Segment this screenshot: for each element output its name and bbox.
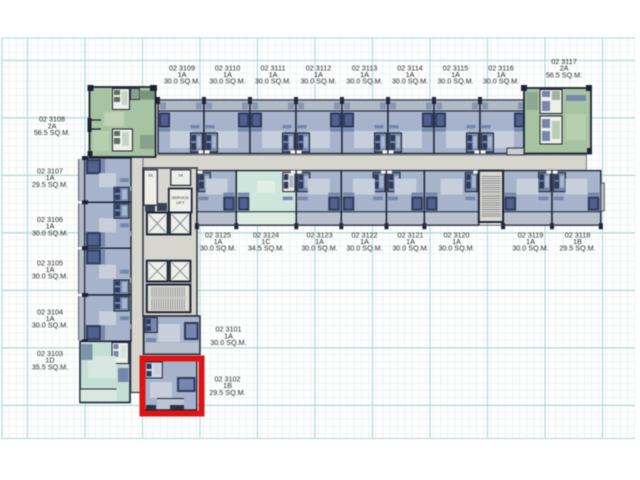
svg-text:34.5 SQ.M.: 34.5 SQ.M. xyxy=(248,244,284,253)
svg-text:04: 04 xyxy=(178,173,183,178)
svg-text:30.0 SQ.M.: 30.0 SQ.M. xyxy=(210,338,246,347)
svg-text:30.0 SQ.M.: 30.0 SQ.M. xyxy=(392,244,428,253)
svg-text:29.5 SQ.M.: 29.5 SQ.M. xyxy=(32,180,68,189)
svg-text:30.0 SQ.M.: 30.0 SQ.M. xyxy=(437,77,473,86)
svg-text:29.5 SQ.M.: 29.5 SQ.M. xyxy=(209,388,245,397)
svg-text:30.0 SQ.M.: 30.0 SQ.M. xyxy=(32,272,68,281)
svg-text:56.5 SQ.M.: 56.5 SQ.M. xyxy=(34,128,70,137)
svg-text:30.0 SQ.M.: 30.0 SQ.M. xyxy=(301,244,337,253)
svg-text:03: 03 xyxy=(148,173,153,178)
svg-text:30.0 SQ.M.: 30.0 SQ.M. xyxy=(346,77,382,86)
svg-text:35.5 SQ.M.: 35.5 SQ.M. xyxy=(32,362,68,371)
svg-text:30.0 SQ.M.: 30.0 SQ.M. xyxy=(346,244,382,253)
svg-text:30.0 SQ.M.: 30.0 SQ.M. xyxy=(438,244,474,253)
svg-text:30.0 SQ.M.: 30.0 SQ.M. xyxy=(32,228,68,237)
svg-text:30.0 SQ.M.: 30.0 SQ.M. xyxy=(392,77,428,86)
svg-text:56.5 SQ.M.: 56.5 SQ.M. xyxy=(546,70,582,79)
svg-text:29.5 SQ.M.: 29.5 SQ.M. xyxy=(559,244,595,253)
svg-text:30.0 SQ.M.: 30.0 SQ.M. xyxy=(164,77,200,86)
svg-text:30.0 SQ.M.: 30.0 SQ.M. xyxy=(483,77,519,86)
svg-text:30.0 SQ.M.: 30.0 SQ.M. xyxy=(512,244,548,253)
svg-text:30.0 SQ.M.: 30.0 SQ.M. xyxy=(255,77,291,86)
svg-text:LIFT: LIFT xyxy=(176,200,185,205)
svg-text:30.0 SQ.M.: 30.0 SQ.M. xyxy=(200,244,236,253)
svg-text:30.0 SQ.M.: 30.0 SQ.M. xyxy=(300,77,336,86)
svg-text:30.0 SQ.M.: 30.0 SQ.M. xyxy=(32,321,68,330)
svg-text:30.0 SQ.M.: 30.0 SQ.M. xyxy=(209,77,245,86)
